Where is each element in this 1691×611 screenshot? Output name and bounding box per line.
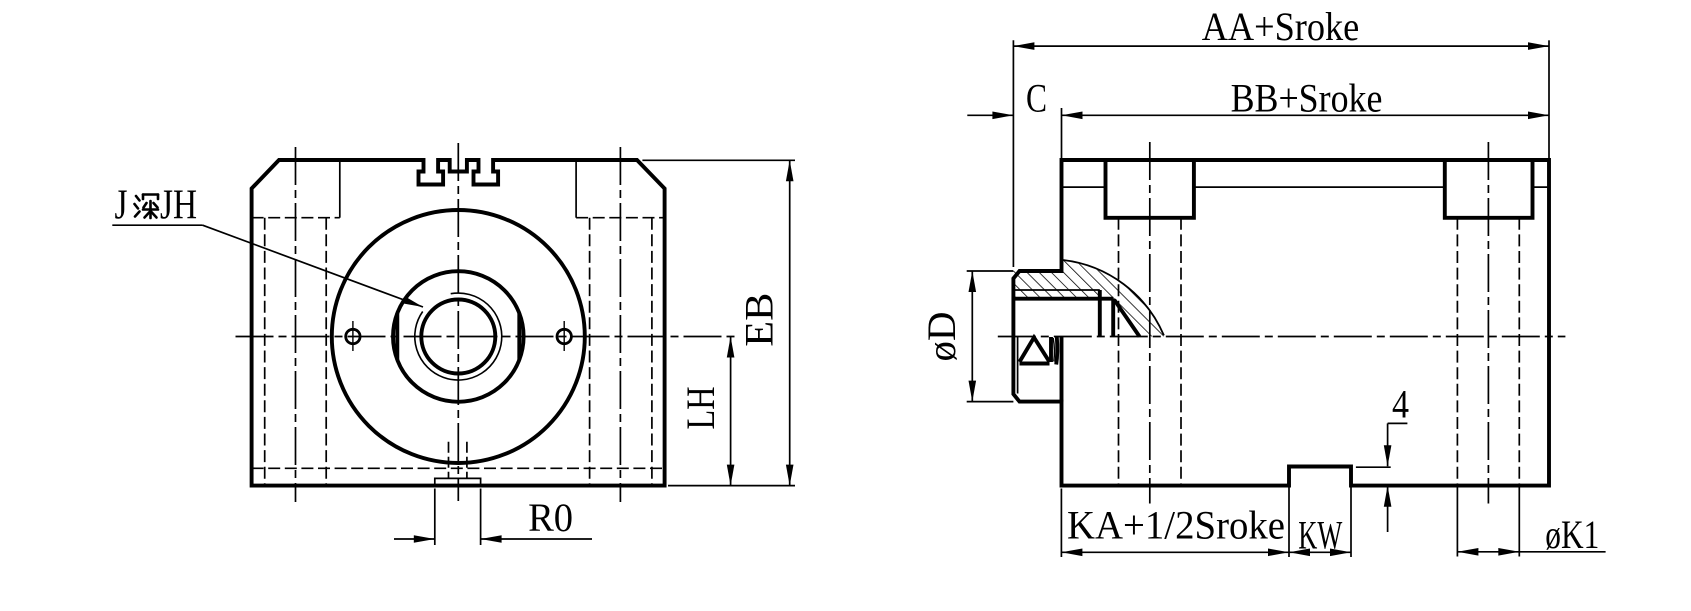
svg-text:J: J [115, 183, 128, 229]
svg-text:KA+1/2Sroke: KA+1/2Sroke [1067, 503, 1285, 548]
svg-text:KW: KW [1298, 512, 1342, 557]
svg-text:4: 4 [1392, 382, 1409, 427]
svg-text:C: C [1026, 75, 1047, 120]
svg-text:JH: JH [160, 183, 197, 229]
svg-text:øK1: øK1 [1545, 512, 1599, 557]
svg-text:øD: øD [919, 312, 964, 362]
svg-text:EB: EB [736, 293, 781, 347]
svg-text:BB+Sroke: BB+Sroke [1231, 75, 1383, 120]
svg-text:R0: R0 [528, 495, 573, 540]
svg-text:LH: LH [678, 387, 723, 430]
svg-text:AA+Sroke: AA+Sroke [1202, 4, 1360, 49]
